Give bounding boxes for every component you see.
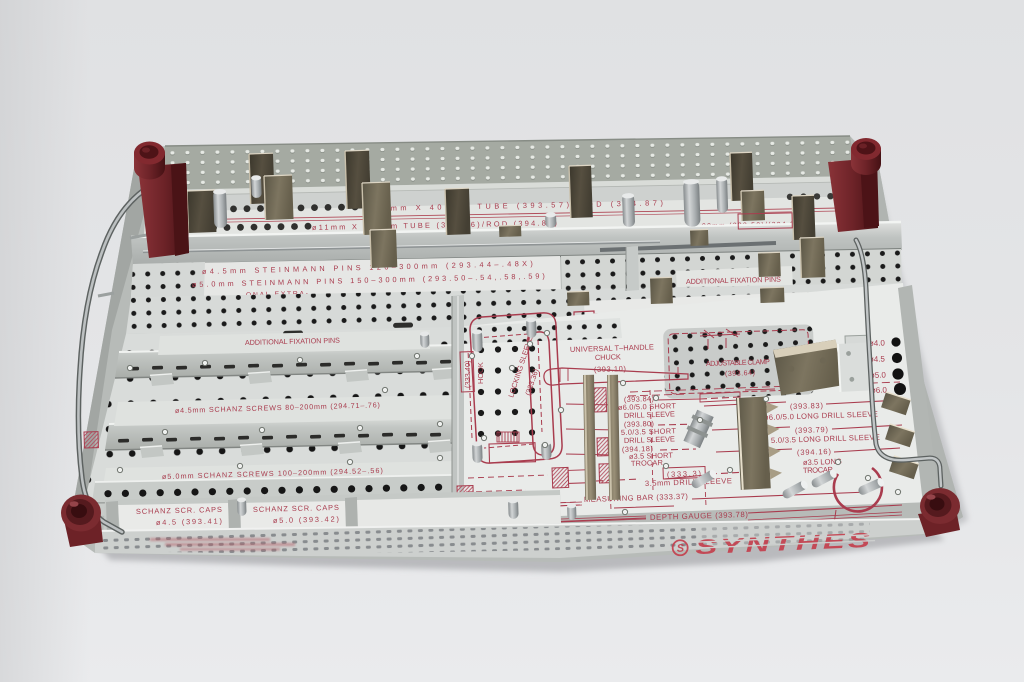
svg-text:S: S xyxy=(676,543,684,555)
svg-text:(333.40): (333.40) xyxy=(463,360,472,388)
svg-text:(393.10): (393.10) xyxy=(594,364,626,374)
svg-text:(394.16): (394.16) xyxy=(797,447,832,457)
svg-text:HOOK: HOOK xyxy=(476,362,485,384)
svg-text:TROCAR: TROCAR xyxy=(631,458,663,468)
svg-text:CHUCK: CHUCK xyxy=(595,352,621,362)
svg-text:(393.83): (393.83) xyxy=(790,401,824,411)
svg-text:(393.64): (393.64) xyxy=(725,368,755,378)
